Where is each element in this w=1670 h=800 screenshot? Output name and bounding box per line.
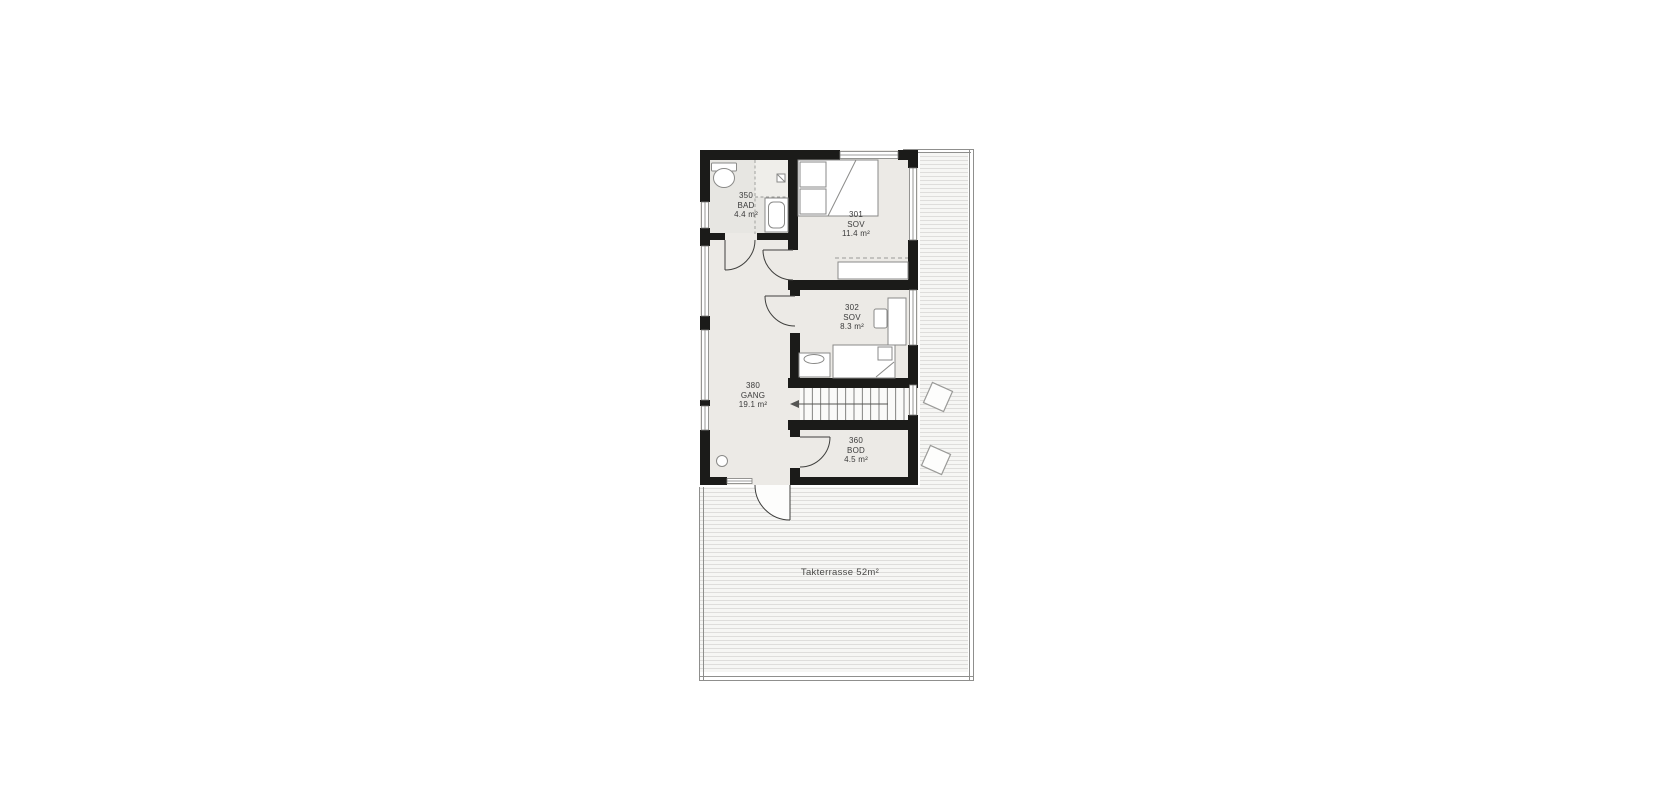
pillow xyxy=(800,162,826,187)
room-name: SOV xyxy=(820,313,884,323)
room-name: BAD xyxy=(714,201,778,211)
pillow xyxy=(878,347,892,360)
room-number: 380 xyxy=(721,381,785,391)
room-area: 11.4 m² xyxy=(824,229,888,239)
floor-plan: 350 BAD 4.4 m² 301 SOV 11.4 m² 302 SOV 8… xyxy=(698,148,976,684)
terrace-label: Takterrasse 52m² xyxy=(758,567,922,578)
room-label-bad: 350 BAD 4.4 m² xyxy=(714,191,778,220)
room-label-sov301: 301 SOV 11.4 m² xyxy=(824,210,888,239)
room-area: 4.4 m² xyxy=(714,210,778,220)
room-name: GANG xyxy=(721,391,785,401)
room-number: 302 xyxy=(820,303,884,313)
floorplan-canvas: 350 BAD 4.4 m² 301 SOV 11.4 m² 302 SOV 8… xyxy=(0,0,1670,800)
room-name: SOV xyxy=(824,220,888,230)
toilet-icon xyxy=(714,169,735,188)
room-label-sov302: 302 SOV 8.3 m² xyxy=(820,303,884,332)
desk xyxy=(888,298,906,345)
dresser-lamp xyxy=(804,355,824,364)
pillow xyxy=(800,189,826,214)
wardrobe xyxy=(838,262,908,279)
room-area: 4.5 m² xyxy=(824,455,888,465)
room-label-bod: 360 BOD 4.5 m² xyxy=(824,436,888,465)
room-area: 8.3 m² xyxy=(820,322,884,332)
room-number: 350 xyxy=(714,191,778,201)
room-name: BOD xyxy=(824,446,888,456)
ceiling-lamp xyxy=(717,456,728,467)
room-area: 19.1 m² xyxy=(721,400,785,410)
room-number: 360 xyxy=(824,436,888,446)
room-label-gang: 380 GANG 19.1 m² xyxy=(721,381,785,410)
room-number: 301 xyxy=(824,210,888,220)
